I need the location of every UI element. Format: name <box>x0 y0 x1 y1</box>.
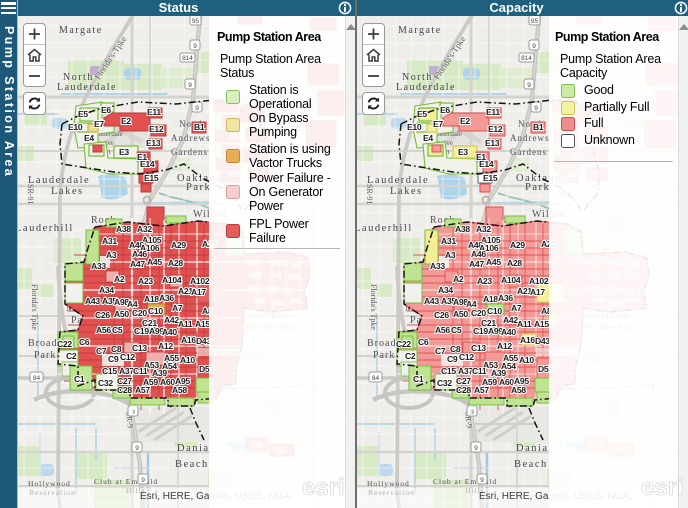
svg-text:esri: esri <box>641 475 684 501</box>
svg-text:esri: esri <box>302 475 345 501</box>
